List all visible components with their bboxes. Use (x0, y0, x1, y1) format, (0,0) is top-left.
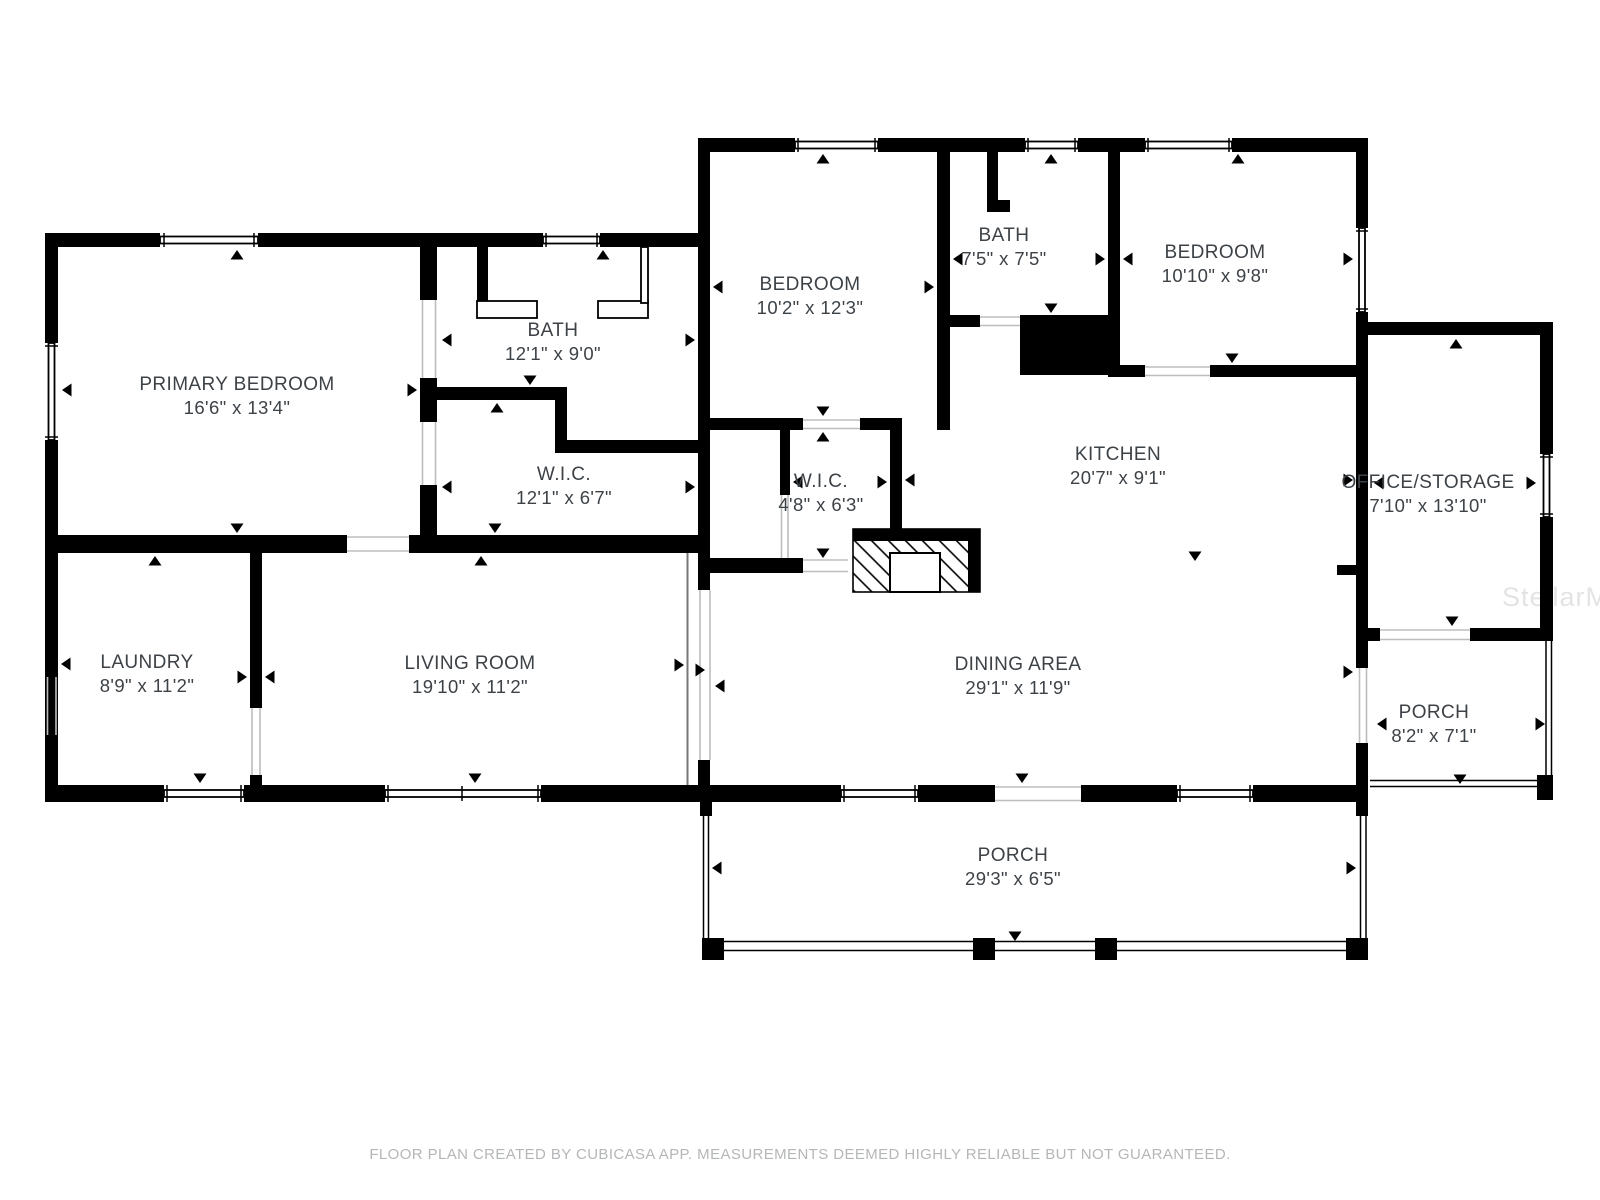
room-dims: 20'7" x 9'1" (1070, 466, 1166, 489)
room-name: LIVING ROOM (404, 652, 535, 675)
room-dims: 12'1" x 9'0" (505, 342, 601, 365)
porch-post (1537, 775, 1553, 800)
window (1177, 785, 1253, 802)
window (841, 785, 918, 802)
room-dims: 10'2" x 12'3" (757, 296, 864, 319)
room-label-bath-hall: BATH 7'5" x 7'5" (961, 224, 1046, 270)
room-name: PORCH (1391, 701, 1476, 724)
room-label-porch-bottom: PORCH 29'3" x 6'5" (965, 844, 1061, 890)
room-dims: 16'6" x 13'4" (139, 396, 334, 419)
room-dims: 12'1" x 6'7" (516, 486, 612, 509)
floor-plan-drawing (0, 0, 1600, 1200)
porch-post (702, 938, 724, 960)
room-dims: 4'8" x 6'3" (778, 493, 863, 516)
room-label-bedroom-right: BEDROOM 10'10" x 9'8" (1162, 241, 1269, 287)
closet-shelf-icons (477, 247, 648, 318)
room-label-wic-small: W.I.C. 4'8" x 6'3" (778, 470, 863, 516)
room-dims: 8'2" x 7'1" (1391, 724, 1476, 747)
window (385, 785, 541, 802)
room-name: BEDROOM (1162, 241, 1269, 264)
room-name: BEDROOM (757, 273, 864, 296)
room-name: KITCHEN (1070, 443, 1166, 466)
room-dims: 19'10" x 11'2" (404, 675, 535, 698)
room-dims: 10'10" x 9'8" (1162, 264, 1269, 287)
window (1145, 138, 1232, 152)
room-dims: 8'9" x 11'2" (100, 674, 195, 697)
room-name: LAUNDRY (100, 651, 195, 674)
room-name: PRIMARY BEDROOM (139, 373, 334, 396)
room-label-bath-main: BATH 12'1" x 9'0" (505, 319, 601, 365)
room-name: BATH (505, 319, 601, 342)
room-dims: 7'5" x 7'5" (961, 247, 1046, 270)
room-label-porch-right: PORCH 8'2" x 7'1" (1391, 701, 1476, 747)
room-dims: 7'10" x 13'10" (1341, 494, 1514, 517)
room-name: OFFICE/STORAGE (1341, 471, 1514, 494)
room-dims: 29'3" x 6'5" (965, 867, 1061, 890)
room-label-wic-main: W.I.C. 12'1" x 6'7" (516, 463, 612, 509)
room-label-laundry: LAUNDRY 8'9" x 11'2" (100, 651, 195, 697)
room-label-kitchen: KITCHEN 20'7" x 9'1" (1070, 443, 1166, 489)
room-label-primary-bedroom: PRIMARY BEDROOM 16'6" x 13'4" (139, 373, 334, 419)
room-label-living-room: LIVING ROOM 19'10" x 11'2" (404, 652, 535, 698)
room-label-bedroom-middle: BEDROOM 10'2" x 12'3" (757, 273, 864, 319)
room-name: DINING AREA (955, 653, 1082, 676)
room-dims: 29'1" x 11'9" (955, 676, 1082, 699)
window (1540, 454, 1553, 517)
room-name: PORCH (965, 844, 1061, 867)
window (795, 138, 878, 152)
floor-plan: StellarMLS (0, 0, 1600, 1200)
fireplace-icon (853, 529, 980, 592)
window (45, 343, 58, 440)
porch-post (1346, 938, 1368, 960)
footer-disclaimer: FLOOR PLAN CREATED BY CUBICASA APP. MEAS… (0, 1146, 1600, 1163)
window (543, 233, 600, 247)
window (160, 233, 258, 247)
window (164, 785, 244, 802)
room-name: W.I.C. (516, 463, 612, 486)
porch-post (1095, 938, 1117, 960)
room-label-office-storage: OFFICE/STORAGE 7'10" x 13'10" (1341, 471, 1514, 517)
room-name: BATH (961, 224, 1046, 247)
room-label-dining-area: DINING AREA 29'1" x 11'9" (955, 653, 1082, 699)
window (1025, 138, 1078, 152)
porch-post (973, 938, 995, 960)
porch-posts (702, 775, 1553, 960)
room-name: W.I.C. (778, 470, 863, 493)
window (1356, 228, 1368, 312)
